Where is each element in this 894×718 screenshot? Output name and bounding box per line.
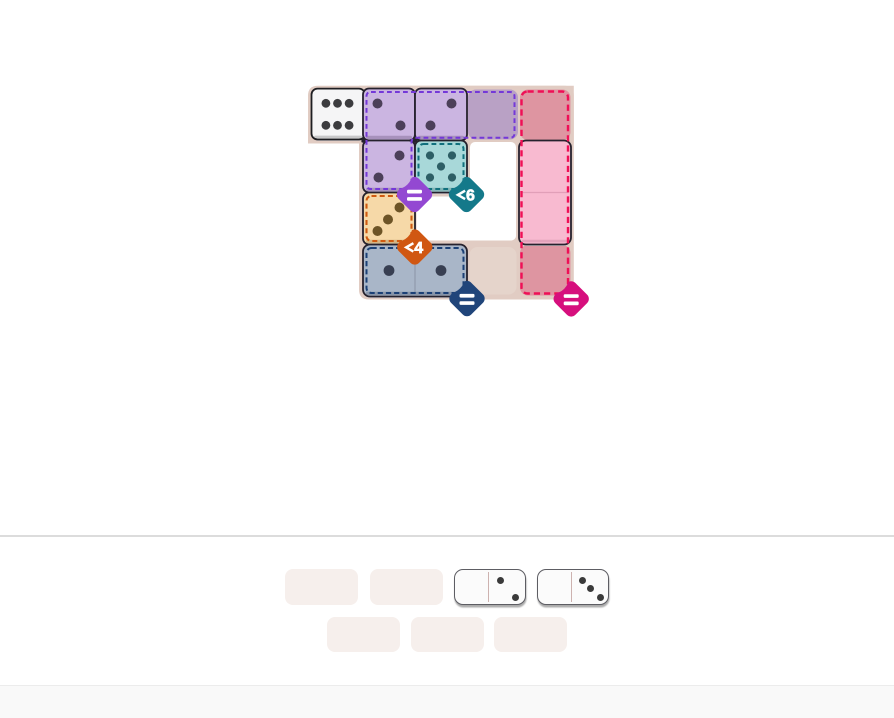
- svg-text:4: 4: [414, 240, 423, 257]
- svg-text:6: 6: [466, 187, 475, 204]
